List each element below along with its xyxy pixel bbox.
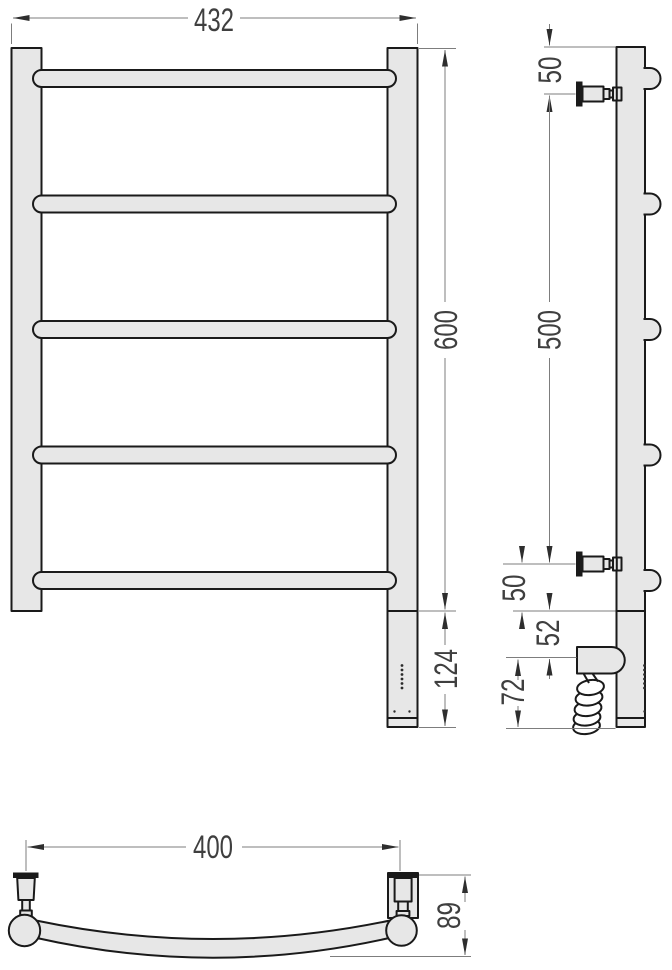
front-rung [33, 321, 396, 338]
dim-side-span: 500 [503, 96, 576, 564]
dim-top-width-label: 400 [193, 829, 233, 865]
front-right-post [388, 48, 418, 727]
wall-bracket-top [576, 82, 622, 107]
side-view [572, 47, 660, 736]
dim-side-elem-offset: 52 [506, 593, 577, 679]
dim-front-height: 600 [419, 49, 464, 612]
front-rung [33, 196, 396, 213]
side-rung-end [644, 570, 661, 591]
dim-front-bottom-label: 124 [428, 649, 464, 689]
curved-rung-top-view [35, 921, 392, 958]
technical-drawing-svg: 432 600 124 50 500 50 [0, 0, 672, 970]
wall-bracket-bottom [576, 552, 622, 577]
dim-front-width-label: 432 [194, 2, 234, 38]
dim-front-height-label: 600 [428, 310, 464, 350]
dim-side-elem-label: 72 [495, 679, 531, 706]
side-rung-end [644, 445, 661, 466]
dim-front-width: 432 [12, 2, 418, 44]
bottom-left-post-circle [9, 915, 40, 946]
side-post [617, 47, 646, 727]
front-rung [33, 70, 396, 87]
front-rung [33, 572, 396, 589]
side-rung-end [644, 194, 661, 215]
dim-side-elem-offset-label: 52 [530, 620, 566, 647]
dim-top-depth-label: 89 [431, 902, 467, 929]
bottom-right-post-circle [386, 915, 417, 946]
dim-side-top-label: 50 [532, 57, 568, 84]
dim-top-width: 400 [26, 829, 400, 871]
dim-front-bottom: 124 [419, 613, 464, 728]
front-view [12, 48, 418, 727]
front-rung [33, 447, 396, 464]
dim-side-span-label: 500 [532, 310, 568, 350]
side-rung-end [644, 68, 661, 89]
bottom-view [9, 873, 418, 958]
spiral-cord [572, 674, 605, 736]
side-rung-end [644, 319, 661, 340]
dim-side-bottom-label: 50 [496, 575, 532, 602]
bottom-right-bracket [388, 873, 418, 919]
heater-housing [577, 647, 625, 674]
bottom-left-bracket [13, 873, 39, 917]
